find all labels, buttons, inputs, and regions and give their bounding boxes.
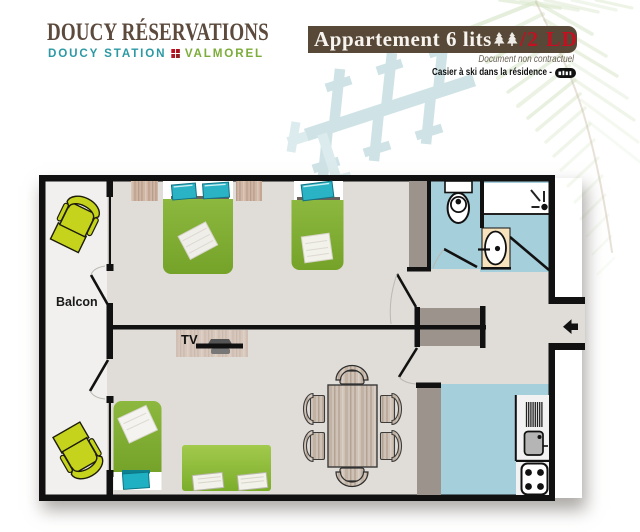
svg-text:TV: TV xyxy=(181,332,198,347)
svg-text:Balcon: Balcon xyxy=(56,295,98,309)
